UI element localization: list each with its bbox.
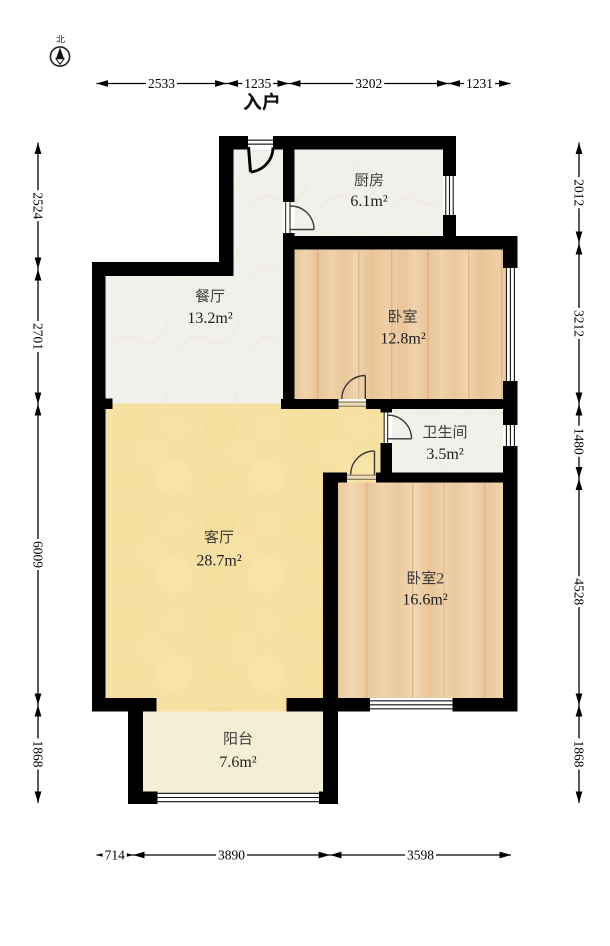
svg-text:13.2m²: 13.2m²: [187, 310, 232, 327]
svg-text:3598: 3598: [407, 847, 434, 862]
svg-text:2701: 2701: [31, 323, 46, 350]
svg-text:6.1m²: 6.1m²: [350, 193, 387, 210]
svg-text:16.6m²: 16.6m²: [402, 592, 447, 609]
svg-text:1231: 1231: [466, 76, 493, 91]
svg-text:28.7m²: 28.7m²: [196, 553, 241, 570]
svg-text:3.5m²: 3.5m²: [426, 446, 463, 463]
svg-text:6009: 6009: [31, 541, 46, 568]
svg-text:3212: 3212: [572, 310, 587, 337]
svg-text:1235: 1235: [244, 76, 271, 91]
svg-text:2524: 2524: [31, 192, 46, 219]
svg-text:714: 714: [105, 847, 126, 862]
svg-text:2533: 2533: [148, 76, 175, 91]
svg-text:3202: 3202: [355, 76, 382, 91]
svg-text:2012: 2012: [572, 179, 587, 206]
svg-text:1868: 1868: [572, 741, 587, 768]
svg-text:4528: 4528: [572, 578, 587, 605]
svg-text:7.6m²: 7.6m²: [219, 754, 256, 771]
svg-text:1480: 1480: [572, 428, 587, 455]
svg-text:2: 2: [436, 570, 444, 587]
svg-text:1868: 1868: [31, 741, 46, 768]
svg-text:3890: 3890: [218, 847, 245, 862]
svg-text:12.8m²: 12.8m²: [380, 331, 425, 348]
